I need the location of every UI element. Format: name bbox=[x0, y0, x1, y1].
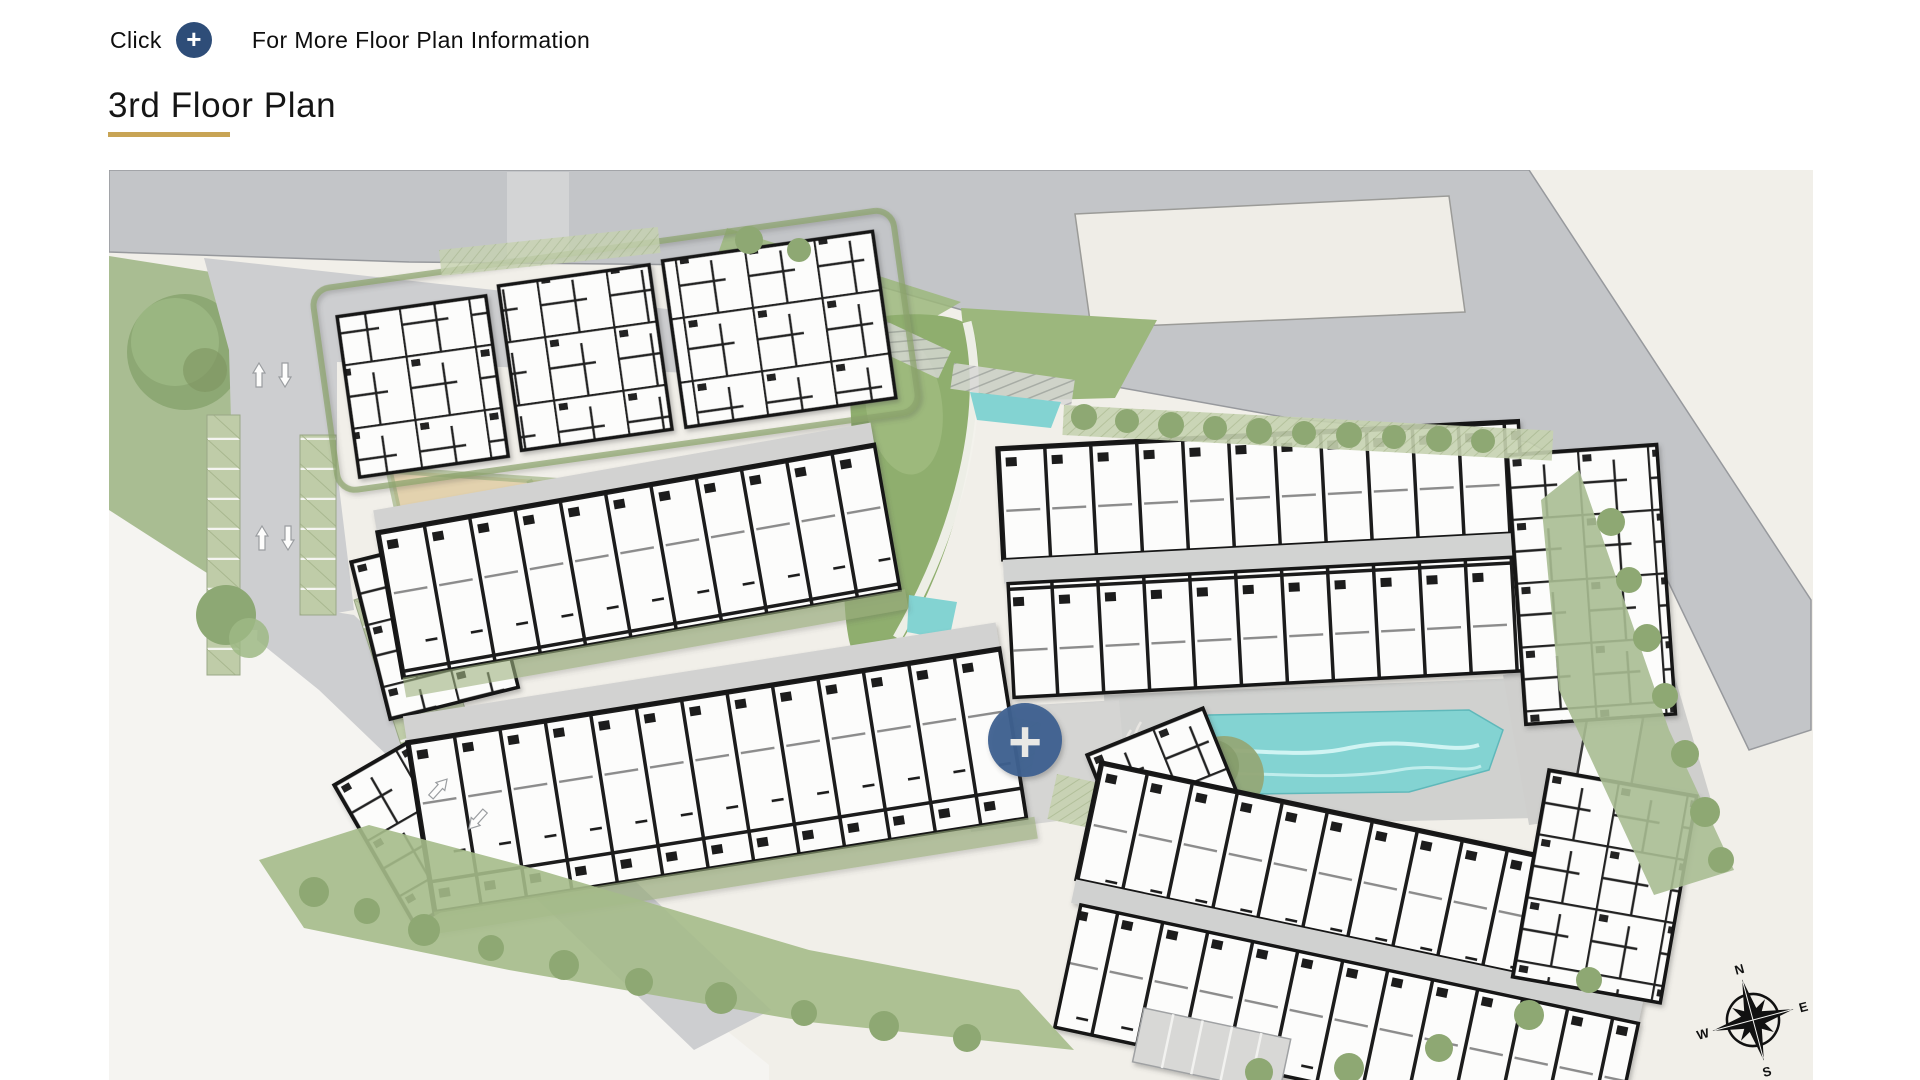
page-title: 3rd Floor Plan bbox=[108, 86, 336, 126]
hint-info-label: For More Floor Plan Information bbox=[252, 27, 590, 54]
site-plan: N E S W + bbox=[109, 170, 1813, 1080]
plus-marker-icon[interactable]: + bbox=[988, 703, 1062, 777]
hint-row: Click + For More Floor Plan Information bbox=[110, 20, 590, 60]
plus-icon[interactable]: + bbox=[176, 22, 212, 58]
hint-click-label: Click bbox=[110, 27, 162, 54]
title-underline bbox=[108, 132, 230, 137]
adjacent-parcel bbox=[1075, 196, 1465, 328]
plus-marker-glyph: + bbox=[1008, 710, 1042, 775]
floor-plan-page: Click + For More Floor Plan Information … bbox=[0, 0, 1920, 1080]
plus-glyph: + bbox=[186, 26, 201, 52]
site-plan-canvas: N E S W + bbox=[109, 170, 1813, 1080]
